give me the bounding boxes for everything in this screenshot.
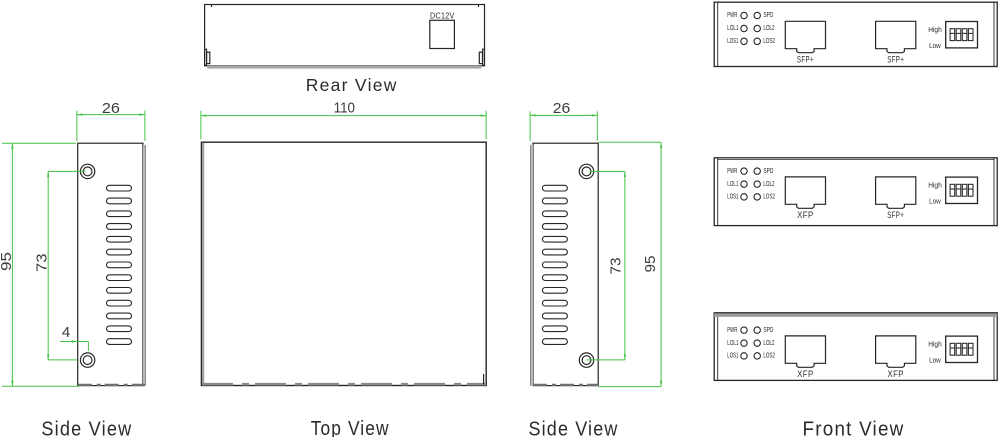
svg-text:DC12V: DC12V — [430, 11, 455, 20]
svg-text:High: High — [928, 340, 942, 349]
svg-text:Side View: Side View — [529, 419, 619, 437]
svg-text:95: 95 — [0, 252, 15, 271]
svg-text:SPD: SPD — [763, 168, 773, 175]
svg-text:95: 95 — [642, 256, 659, 273]
svg-text:73: 73 — [608, 258, 625, 275]
svg-text:Low: Low — [929, 41, 941, 50]
svg-text:26: 26 — [553, 100, 571, 117]
svg-text:XFP: XFP — [887, 369, 904, 379]
svg-text:LOL1: LOL1 — [727, 340, 738, 347]
svg-text:Low: Low — [929, 356, 941, 365]
svg-text:XFP: XFP — [797, 369, 814, 379]
svg-text:Low: Low — [929, 197, 941, 206]
svg-text:LOL2: LOL2 — [763, 25, 774, 32]
svg-text:LOS2: LOS2 — [763, 38, 775, 45]
svg-text:SFP+: SFP+ — [887, 55, 904, 65]
svg-text:Front View: Front View — [803, 419, 905, 437]
svg-text:PWR: PWR — [727, 168, 737, 175]
svg-text:LOL2: LOL2 — [763, 340, 774, 347]
svg-text:LOS1: LOS1 — [727, 38, 738, 45]
svg-text:SPD: SPD — [763, 12, 773, 19]
svg-text:SFP+: SFP+ — [887, 210, 904, 220]
svg-text:LOL1: LOL1 — [727, 181, 738, 188]
svg-text:Rear View: Rear View — [306, 75, 398, 95]
svg-text:LOS2: LOS2 — [763, 353, 775, 360]
svg-text:PWR: PWR — [727, 327, 737, 334]
svg-text:73: 73 — [33, 254, 50, 273]
svg-text:110: 110 — [334, 99, 355, 116]
svg-text:LOS1: LOS1 — [727, 194, 738, 201]
svg-text:XFP: XFP — [797, 210, 814, 220]
svg-text:LOS1: LOS1 — [727, 353, 738, 360]
svg-text:Side View: Side View — [41, 419, 132, 437]
svg-text:LOS2: LOS2 — [763, 194, 775, 201]
svg-text:LOL2: LOL2 — [763, 181, 774, 188]
svg-text:High: High — [928, 25, 942, 34]
svg-text:26: 26 — [102, 100, 120, 117]
svg-text:SFP+: SFP+ — [797, 55, 814, 65]
svg-text:4: 4 — [62, 324, 70, 341]
svg-text:SPD: SPD — [763, 327, 773, 334]
svg-text:PWR: PWR — [727, 12, 737, 19]
svg-text:Top View: Top View — [311, 418, 390, 437]
svg-text:LOL1: LOL1 — [727, 25, 738, 32]
svg-text:High: High — [928, 181, 942, 190]
